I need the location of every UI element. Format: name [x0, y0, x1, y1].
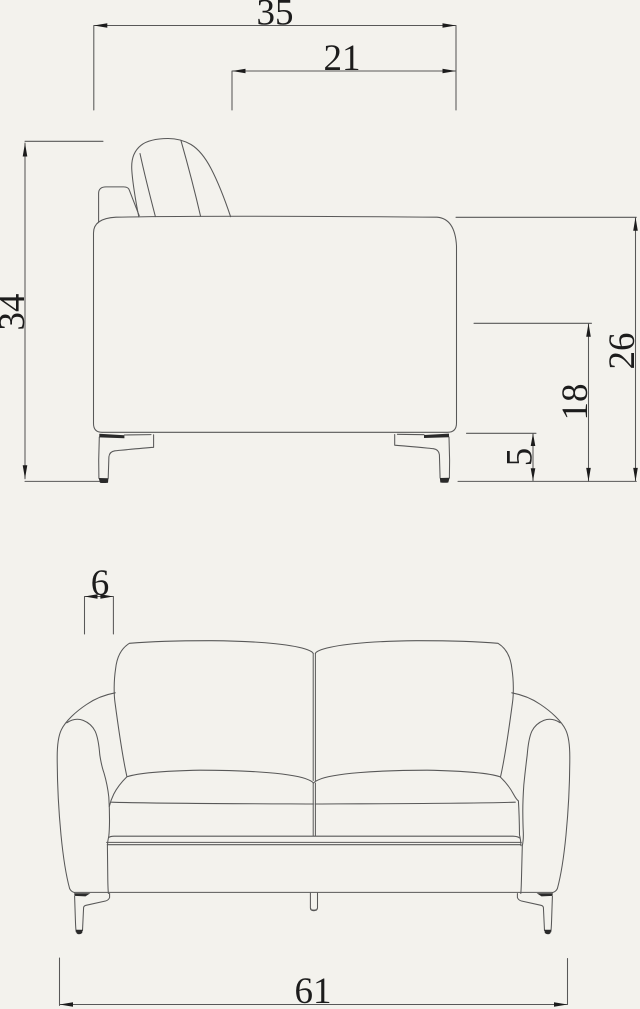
svg-text:35: 35: [257, 0, 294, 34]
svg-text:21: 21: [324, 38, 361, 79]
svg-text:6: 6: [91, 563, 110, 604]
svg-text:26: 26: [602, 333, 640, 370]
svg-text:5: 5: [500, 448, 541, 467]
svg-text:61: 61: [295, 971, 332, 1009]
svg-text:34: 34: [0, 294, 33, 331]
svg-text:18: 18: [555, 384, 596, 421]
